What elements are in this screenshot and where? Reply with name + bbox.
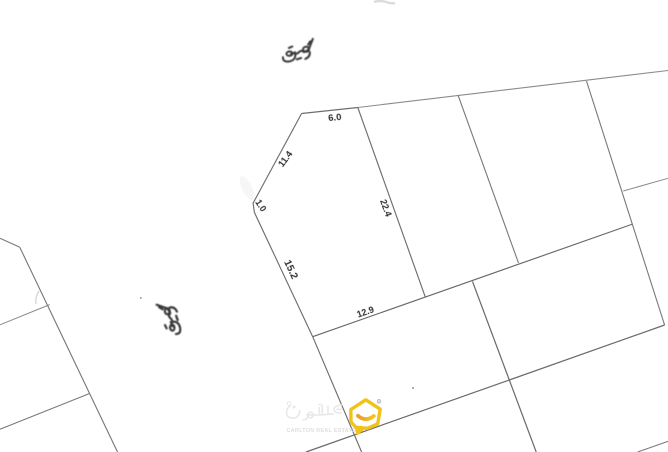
svg-text:6.0: 6.0: [328, 112, 342, 124]
svg-text:CARLTON REAL ESTATE: CARLTON REAL ESTATE: [287, 428, 357, 434]
svg-text:R: R: [378, 400, 381, 404]
svg-text:11.4: 11.4: [276, 149, 294, 169]
svg-text:15.2: 15.2: [281, 258, 299, 281]
svg-text:1.0: 1.0: [253, 198, 268, 214]
svg-text:12.9: 12.9: [356, 305, 376, 320]
